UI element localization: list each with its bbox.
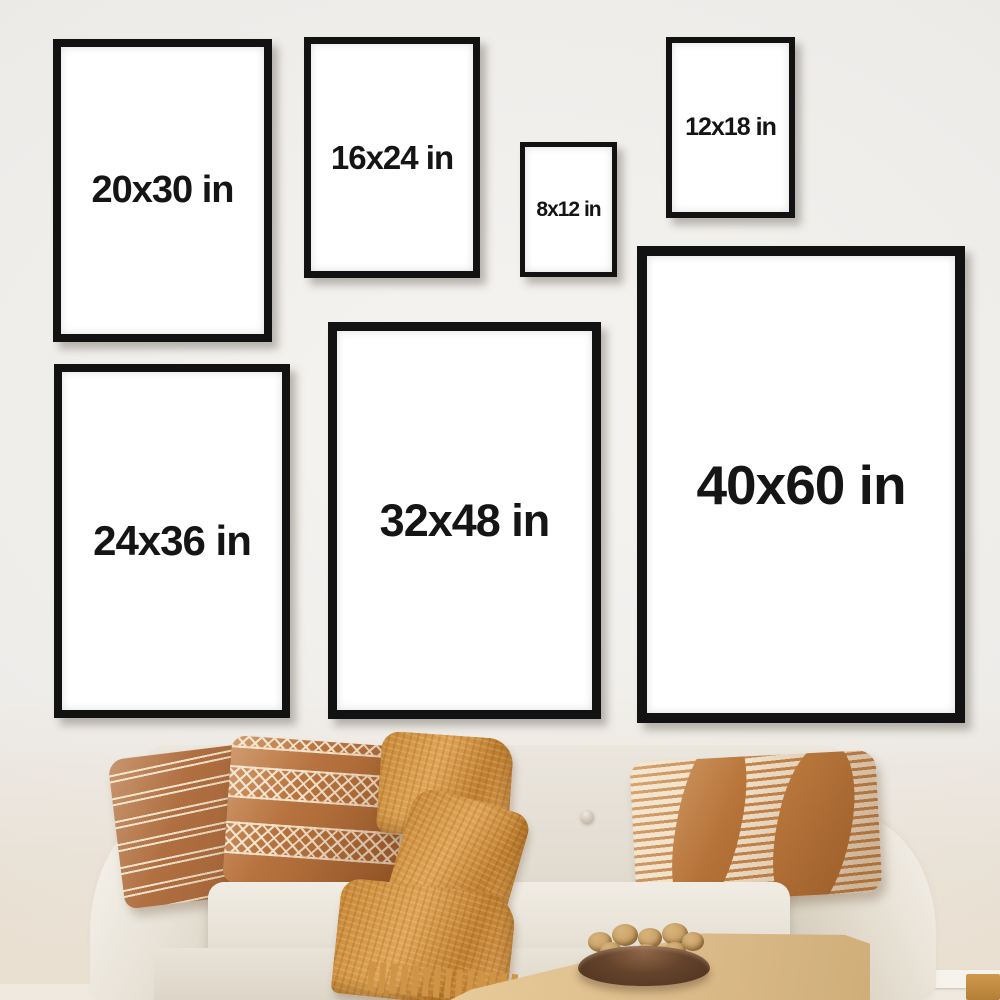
poster-size-comparison-scene: 20x30 in 16x24 in 8x12 in 12x18 in 24x36…	[0, 0, 1000, 1000]
size-label-24x36: 24x36 in	[93, 517, 251, 565]
poster-frame-40x60: 40x60 in	[637, 246, 965, 723]
sofa-button-tuft	[581, 810, 594, 823]
poster-frame-20x30: 20x30 in	[53, 39, 272, 342]
size-label-8x12: 8x12 in	[536, 198, 600, 222]
size-label-12x18: 12x18 in	[685, 113, 776, 142]
diamond-band	[224, 821, 400, 865]
poster-frame-16x24: 16x24 in	[304, 37, 480, 278]
size-label-40x60: 40x60 in	[696, 453, 905, 517]
nut-bowl	[578, 920, 710, 986]
wooden-bowl	[578, 946, 710, 986]
wooden-stool-corner	[966, 974, 1000, 1000]
poster-frame-8x12: 8x12 in	[520, 142, 617, 277]
poster-frame-24x36: 24x36 in	[54, 364, 290, 718]
poster-frame-32x48: 32x48 in	[328, 322, 601, 719]
size-label-20x30: 20x30 in	[92, 169, 234, 212]
size-label-16x24: 16x24 in	[331, 139, 453, 177]
poster-frame-12x18: 12x18 in	[666, 37, 795, 218]
size-label-32x48: 32x48 in	[380, 495, 550, 547]
